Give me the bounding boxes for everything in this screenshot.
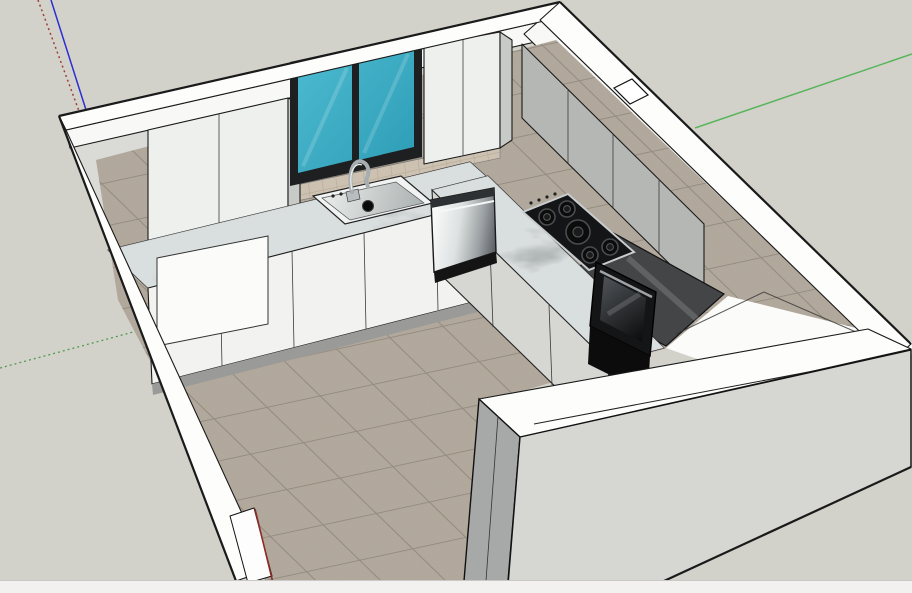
burner-cap [544, 214, 551, 221]
model-viewport[interactable] [0, 0, 912, 580]
sink-hole [331, 194, 334, 197]
burner-cap [607, 244, 614, 251]
burner-cap [587, 252, 594, 259]
upper-cabinet-right-side [500, 32, 512, 148]
sink-hole [339, 192, 342, 195]
status-bar [0, 580, 912, 593]
burner-cap [564, 206, 571, 213]
upper-cabinet-right [424, 32, 500, 164]
burner-cap [573, 227, 583, 237]
sink-drain [363, 201, 374, 212]
app-window [0, 0, 912, 593]
kitchen-3d-scene [0, 0, 912, 580]
